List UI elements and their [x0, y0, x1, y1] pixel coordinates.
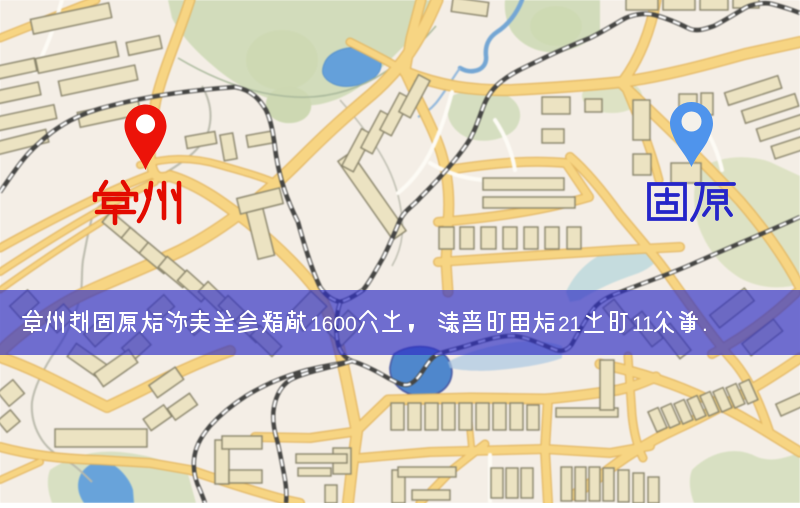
svg-text:11: 11 [632, 313, 654, 336]
svg-text:21: 21 [558, 313, 581, 336]
svg-text:.: . [702, 313, 708, 336]
svg-text:1600: 1600 [310, 313, 357, 336]
